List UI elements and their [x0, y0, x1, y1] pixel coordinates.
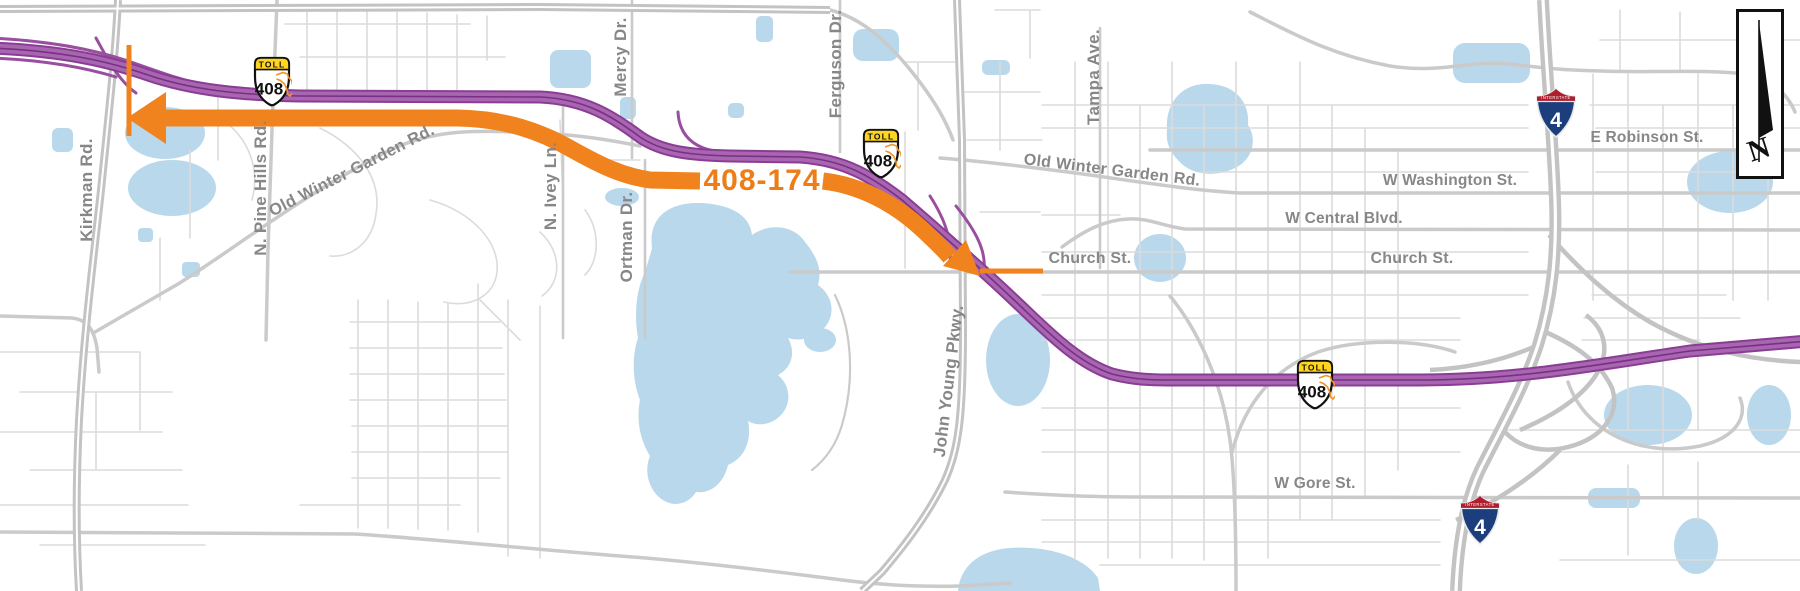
north-arrow-icon: N: [1739, 12, 1781, 176]
route-section-label: 408-174: [703, 164, 820, 198]
street-label-gore: W Gore St.: [1274, 475, 1355, 493]
street-label-washington: W Washington St.: [1383, 172, 1517, 190]
compass-letter: N: [1743, 130, 1774, 168]
street-label-mercy: Mercy Dr.: [611, 17, 631, 96]
street-label-robinson: E Robinson St.: [1590, 129, 1703, 147]
street-label-pine-hills: N. Pine Hills Rd.: [251, 120, 271, 255]
interstate-banner-text: INTERSTATE: [1465, 502, 1494, 507]
interstate-4-shield: INTERSTATE 4: [1458, 494, 1502, 546]
street-label-ivey: N. Ivey Ln.: [541, 142, 561, 230]
toll-408-shield: TOLL 408: [252, 55, 292, 109]
toll-408-shield: TOLL 408: [1295, 358, 1335, 412]
street-label-ferguson: Ferguson Dr.: [826, 10, 846, 118]
toll-banner-text: TOLL: [1302, 362, 1329, 372]
interstate-4-shield: INTERSTATE 4: [1534, 87, 1578, 139]
street-label-church-west: Church St.: [1049, 250, 1132, 268]
street-label-tampa: Tampa Ave.: [1084, 29, 1104, 125]
toll-banner-text: TOLL: [259, 59, 286, 69]
street-label-church-east: Church St.: [1371, 250, 1454, 268]
interstate-banner-text: INTERSTATE: [1541, 95, 1570, 100]
toll-number-text: 408: [255, 80, 283, 99]
north-compass: N: [1736, 9, 1784, 179]
interstate-number-text: 4: [1550, 109, 1562, 132]
map-canvas[interactable]: Kirkman Rd. N. Pine Hills Rd. Old Winter…: [0, 0, 1800, 591]
street-label-ortman: Ortman Dr.: [617, 192, 637, 283]
toll-number-text: 408: [1298, 383, 1326, 402]
street-label-kirkman: Kirkman Rd.: [77, 138, 97, 241]
toll-number-text: 408: [864, 152, 892, 171]
street-label-central: W Central Blvd.: [1285, 210, 1403, 228]
toll-banner-text: TOLL: [868, 131, 895, 141]
interstate-number-text: 4: [1474, 516, 1486, 539]
toll-408-shield: TOLL 408: [861, 127, 901, 181]
